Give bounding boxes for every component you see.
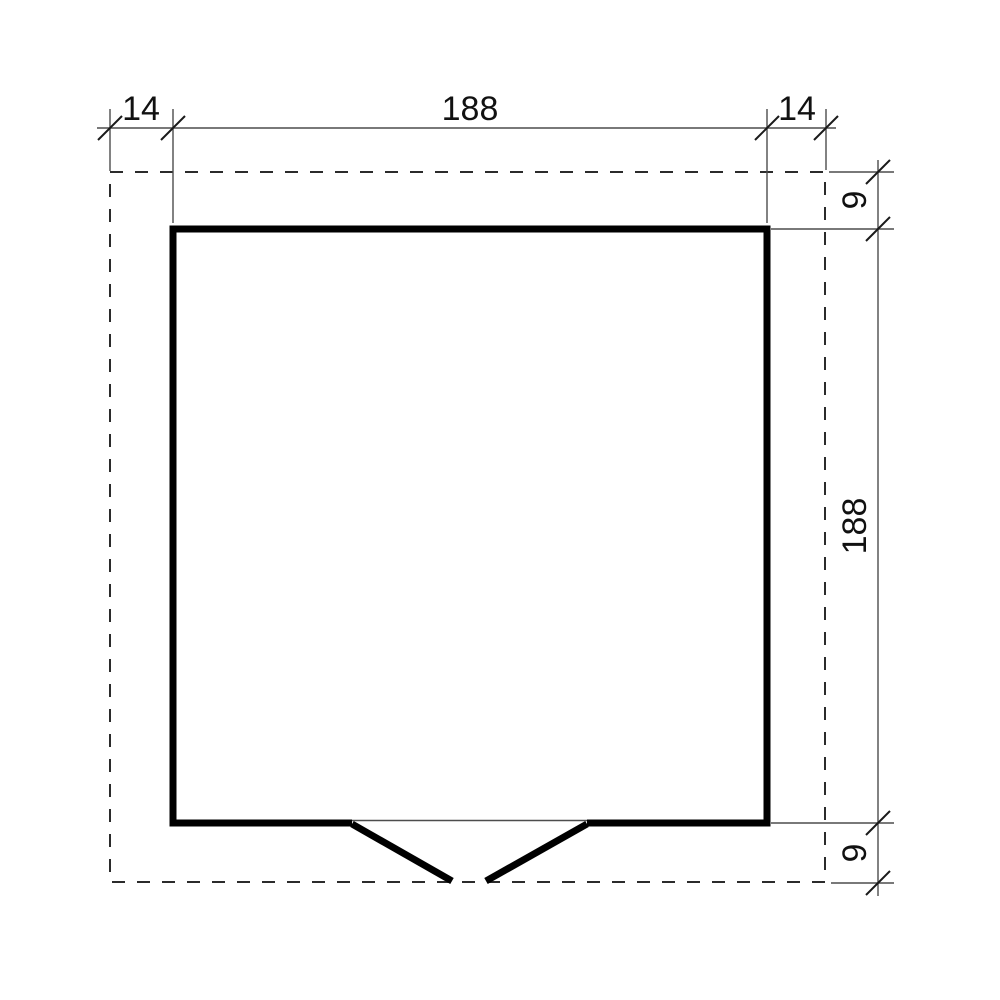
dim-label-top-left: 14 bbox=[122, 90, 160, 128]
dim-label-top-middle: 188 bbox=[442, 90, 499, 128]
wall-outline bbox=[173, 229, 767, 823]
wall-group bbox=[173, 229, 767, 881]
dim-label-right-top: 9 bbox=[836, 191, 874, 210]
technical-drawing-svg: 14 188 14 9 188 9 bbox=[0, 0, 1000, 1000]
dimension-label-group: 14 188 14 9 188 9 bbox=[122, 90, 874, 862]
dim-label-top-right: 14 bbox=[778, 90, 816, 128]
tick-mark-group bbox=[98, 116, 890, 895]
roof-overhang-outline bbox=[110, 172, 825, 882]
drawing-canvas: 14 188 14 9 188 9 bbox=[0, 0, 1000, 1000]
door-leaf-right bbox=[486, 824, 587, 881]
door-leaf-left bbox=[352, 824, 452, 881]
dim-label-right-middle: 188 bbox=[836, 498, 874, 555]
dim-label-right-bottom: 9 bbox=[836, 844, 874, 863]
